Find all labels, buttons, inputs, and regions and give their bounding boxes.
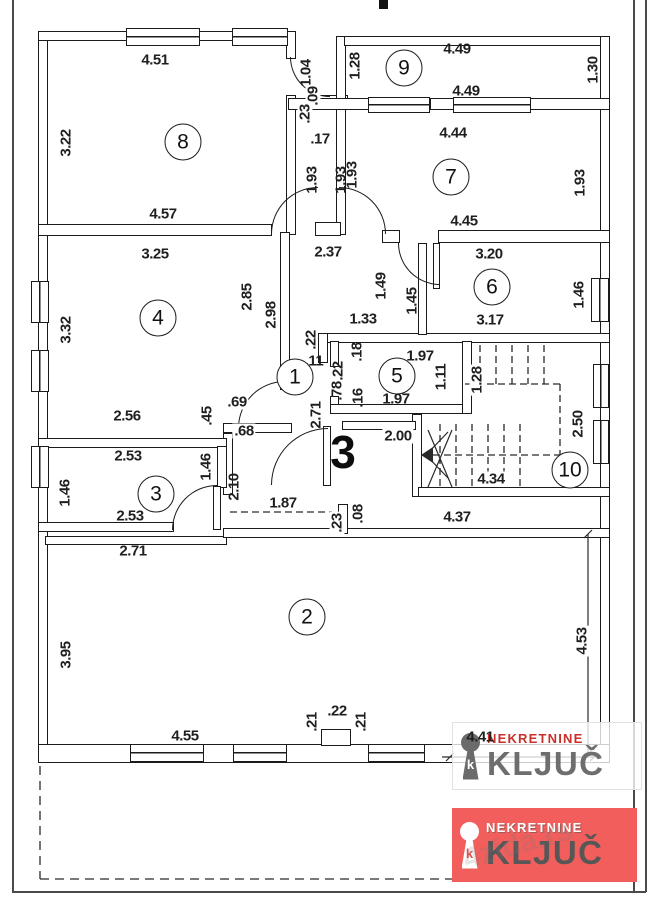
brand-name-top: NEKRETNINE — [487, 732, 605, 745]
dimension-label: 1.93 — [573, 169, 588, 196]
dimension-label: 4.49 — [452, 84, 479, 99]
dimension-label: 2.37 — [314, 245, 341, 260]
dimension-label: .16 — [351, 388, 366, 407]
dimension-label: 4.53 — [575, 625, 590, 656]
window-symbol — [368, 744, 425, 762]
room-number-4: 4 — [140, 300, 177, 337]
dimension-label: .08 — [351, 502, 366, 525]
door-arc — [398, 243, 440, 285]
dimension-label: 1.04 — [299, 59, 314, 86]
wall — [38, 522, 174, 532]
dimension-label: 3.95 — [59, 641, 74, 668]
room-number-9: 9 — [386, 50, 423, 87]
dimension-label: 1.87 — [267, 496, 298, 511]
dimension-label: 1.97 — [406, 349, 433, 364]
dimension-label: 3.20 — [475, 247, 502, 262]
page-frame-bottom — [12, 891, 646, 893]
door-arc — [271, 187, 318, 234]
brand-footer-badge: k NEKRETNINE KLJUČ — [452, 808, 637, 882]
dimension-label: 1.28 — [348, 52, 363, 79]
dimension-label: 3.17 — [476, 313, 503, 328]
page-frame-left — [12, 0, 14, 893]
dimension-label: 4.37 — [443, 510, 470, 525]
wall — [38, 31, 48, 763]
dimension-label: 2.71 — [309, 401, 324, 428]
dimension-label: 2.53 — [114, 449, 141, 464]
chimney-notch — [321, 729, 351, 746]
dimension-label: 2.98 — [264, 301, 279, 328]
room-number-6: 6 — [474, 269, 511, 306]
wall — [344, 36, 610, 46]
dimension-label: .78 — [330, 381, 345, 400]
door-arc — [172, 485, 217, 530]
dimension-label: 1.46 — [572, 281, 587, 308]
dimension-label: 3.25 — [141, 247, 168, 262]
dimension-label: 1.46 — [58, 479, 73, 506]
window-symbol — [31, 281, 49, 323]
dimension-label: .22 — [327, 704, 346, 719]
room-number-3: 3 — [138, 476, 175, 513]
room-number-8: 8 — [165, 124, 202, 161]
dimension-label: .17 — [310, 132, 329, 147]
window-symbol — [593, 364, 609, 408]
door-arc — [339, 187, 386, 234]
brand-name-top: NEKRETNINE — [486, 821, 604, 834]
window-symbol — [31, 446, 49, 488]
dimension-label: 1.45 — [405, 287, 420, 314]
dimension-label: 2.85 — [240, 283, 255, 310]
window-symbol — [591, 278, 609, 322]
dimension-label: .69 — [225, 395, 248, 410]
dimension-label: 4.34 — [475, 472, 506, 487]
dimension-label: 2.71 — [119, 544, 146, 559]
window-symbol — [368, 97, 430, 113]
window-symbol — [31, 350, 49, 392]
dimension-label: .23 — [298, 102, 313, 125]
wall — [528, 98, 610, 110]
room-number-7: 7 — [433, 159, 470, 196]
dimension-label: 1.46 — [199, 453, 214, 480]
dimension-label: 1.49 — [374, 272, 389, 299]
door-jamb — [315, 222, 341, 236]
wall — [418, 487, 610, 497]
window-symbol — [593, 420, 609, 464]
wall — [38, 224, 272, 236]
dimension-label: .21 — [305, 712, 320, 731]
dimension-label: 4.45 — [450, 214, 477, 229]
dimension-label: 1.33 — [349, 312, 376, 327]
cropped-title-mark — [379, 0, 388, 9]
dimension-label: 1.30 — [586, 56, 601, 83]
room-number-10: 10 — [552, 452, 589, 489]
dimension-label: 2.53 — [116, 509, 143, 524]
wall — [438, 230, 610, 243]
dimension-label: 4.55 — [171, 729, 198, 744]
floor-plan: k NEKRETNINE KLJUČ k NEKRETNINE KLJUČ 4z… — [0, 0, 652, 900]
door-arc — [271, 428, 328, 485]
dimension-label: 1.93 — [345, 161, 360, 188]
window-symbol — [126, 28, 200, 46]
dimension-label: .22 — [331, 361, 346, 380]
page-frame-right — [645, 0, 647, 892]
dimension-label: .23 — [330, 511, 345, 534]
dimension-label: 2.50 — [571, 410, 586, 437]
dimension-label: 4.44 — [439, 126, 466, 141]
window-symbol — [232, 28, 288, 46]
dimension-label: 4.57 — [149, 207, 176, 222]
window-symbol — [130, 744, 204, 762]
dimension-label: 2.00 — [382, 429, 413, 444]
hall-room-label: 3 — [330, 425, 356, 479]
dimension-label: 3.32 — [59, 316, 74, 343]
wall — [223, 528, 610, 538]
dimension-label: 1.28 — [470, 364, 485, 395]
wall — [38, 438, 227, 448]
dimension-label: .21 — [354, 712, 369, 731]
brand-name-main: KLJUČ — [487, 747, 605, 780]
key-logo-icon: k — [460, 822, 479, 869]
dimension-label: 2.56 — [113, 409, 140, 424]
room-number-2: 2 — [289, 599, 326, 636]
dimension-label: 3.22 — [59, 129, 74, 156]
dimension-label: .18 — [350, 342, 365, 361]
wall — [430, 98, 455, 110]
dimension-label: .68 — [232, 424, 255, 439]
dimension-label: 1.93 — [305, 166, 320, 193]
window-symbol — [233, 744, 287, 762]
dimension-label: 4.49 — [443, 42, 470, 57]
dimension-label: .45 — [200, 406, 215, 425]
dimension-label: .22 — [304, 330, 319, 349]
dimension-label: 2.10 — [227, 473, 242, 500]
room-number-1: 1 — [277, 359, 314, 396]
dimension-label: 4.51 — [141, 53, 168, 68]
room-number-5: 5 — [379, 358, 416, 395]
brand-name-main: KLJUČ — [486, 836, 604, 869]
dimension-label: 4.41 — [466, 730, 493, 745]
dimension-label: 1.11 — [434, 364, 449, 390]
